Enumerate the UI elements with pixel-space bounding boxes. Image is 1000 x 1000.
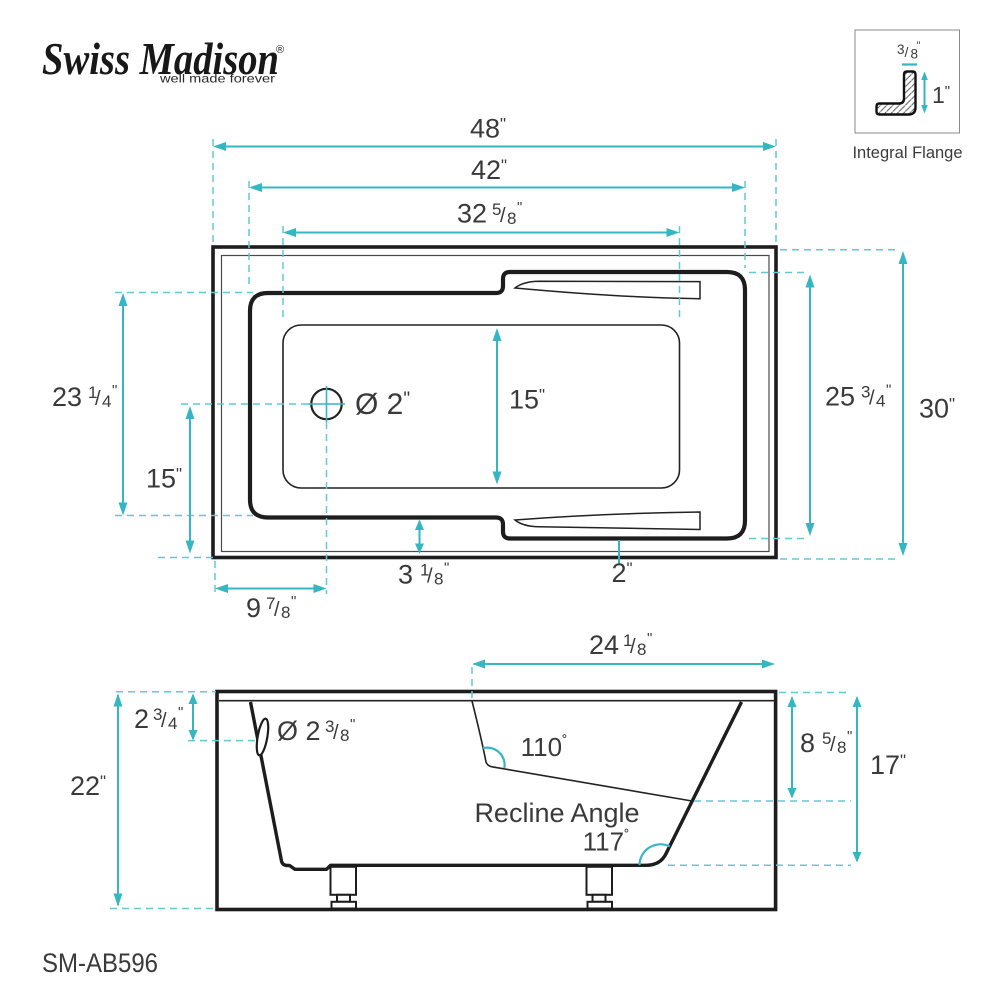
svg-text:": ": [350, 716, 355, 733]
svg-text:8: 8: [507, 209, 516, 228]
svg-text:Recline Angle: Recline Angle: [474, 798, 639, 828]
svg-text:4: 4: [876, 392, 885, 411]
svg-text:/: /: [161, 710, 167, 732]
svg-text:/: /: [905, 44, 909, 60]
svg-text:": ": [112, 382, 117, 399]
svg-text:": ": [847, 728, 852, 745]
svg-text:/: /: [274, 599, 280, 621]
svg-text:/: /: [869, 388, 875, 410]
svg-text:25: 25: [825, 382, 855, 412]
svg-text:110˚: 110˚: [521, 732, 568, 762]
svg-text:8: 8: [800, 728, 815, 758]
svg-text:8: 8: [837, 738, 846, 757]
svg-text:4: 4: [102, 392, 111, 411]
svg-text:8: 8: [434, 570, 443, 589]
svg-text:3: 3: [398, 560, 413, 590]
svg-text:Ø 2": Ø 2": [355, 388, 410, 421]
svg-text:Ø 2: Ø 2: [277, 716, 321, 746]
svg-text:/: /: [333, 722, 339, 744]
svg-text:4: 4: [168, 714, 177, 733]
svg-text:": ": [647, 630, 652, 647]
svg-text:": ": [444, 560, 449, 577]
svg-text:well made forever: well made forever: [159, 72, 275, 86]
svg-text:®: ®: [276, 44, 284, 56]
svg-text:": ": [886, 382, 891, 399]
svg-text:2: 2: [134, 704, 149, 734]
svg-text:23: 23: [52, 382, 82, 412]
svg-text:24: 24: [589, 630, 619, 660]
svg-text:/: /: [95, 388, 101, 410]
svg-text:117˚: 117˚: [583, 827, 630, 857]
svg-text:SM-AB596: SM-AB596: [42, 948, 158, 978]
svg-text:8: 8: [281, 603, 290, 622]
svg-text:/: /: [500, 205, 506, 227]
svg-text:32: 32: [457, 199, 487, 229]
svg-text:": ": [291, 593, 296, 610]
svg-text:": ": [517, 199, 522, 216]
svg-text:9: 9: [246, 593, 261, 623]
svg-text:/: /: [830, 734, 836, 756]
svg-text:/: /: [630, 636, 636, 658]
svg-text:": ": [178, 704, 183, 721]
svg-text:Integral Flange: Integral Flange: [852, 144, 962, 162]
svg-text:8: 8: [637, 640, 646, 659]
svg-text:/: /: [427, 566, 433, 588]
svg-text:": ": [917, 40, 921, 52]
svg-text:8: 8: [340, 726, 349, 745]
svg-text:3: 3: [897, 42, 905, 57]
